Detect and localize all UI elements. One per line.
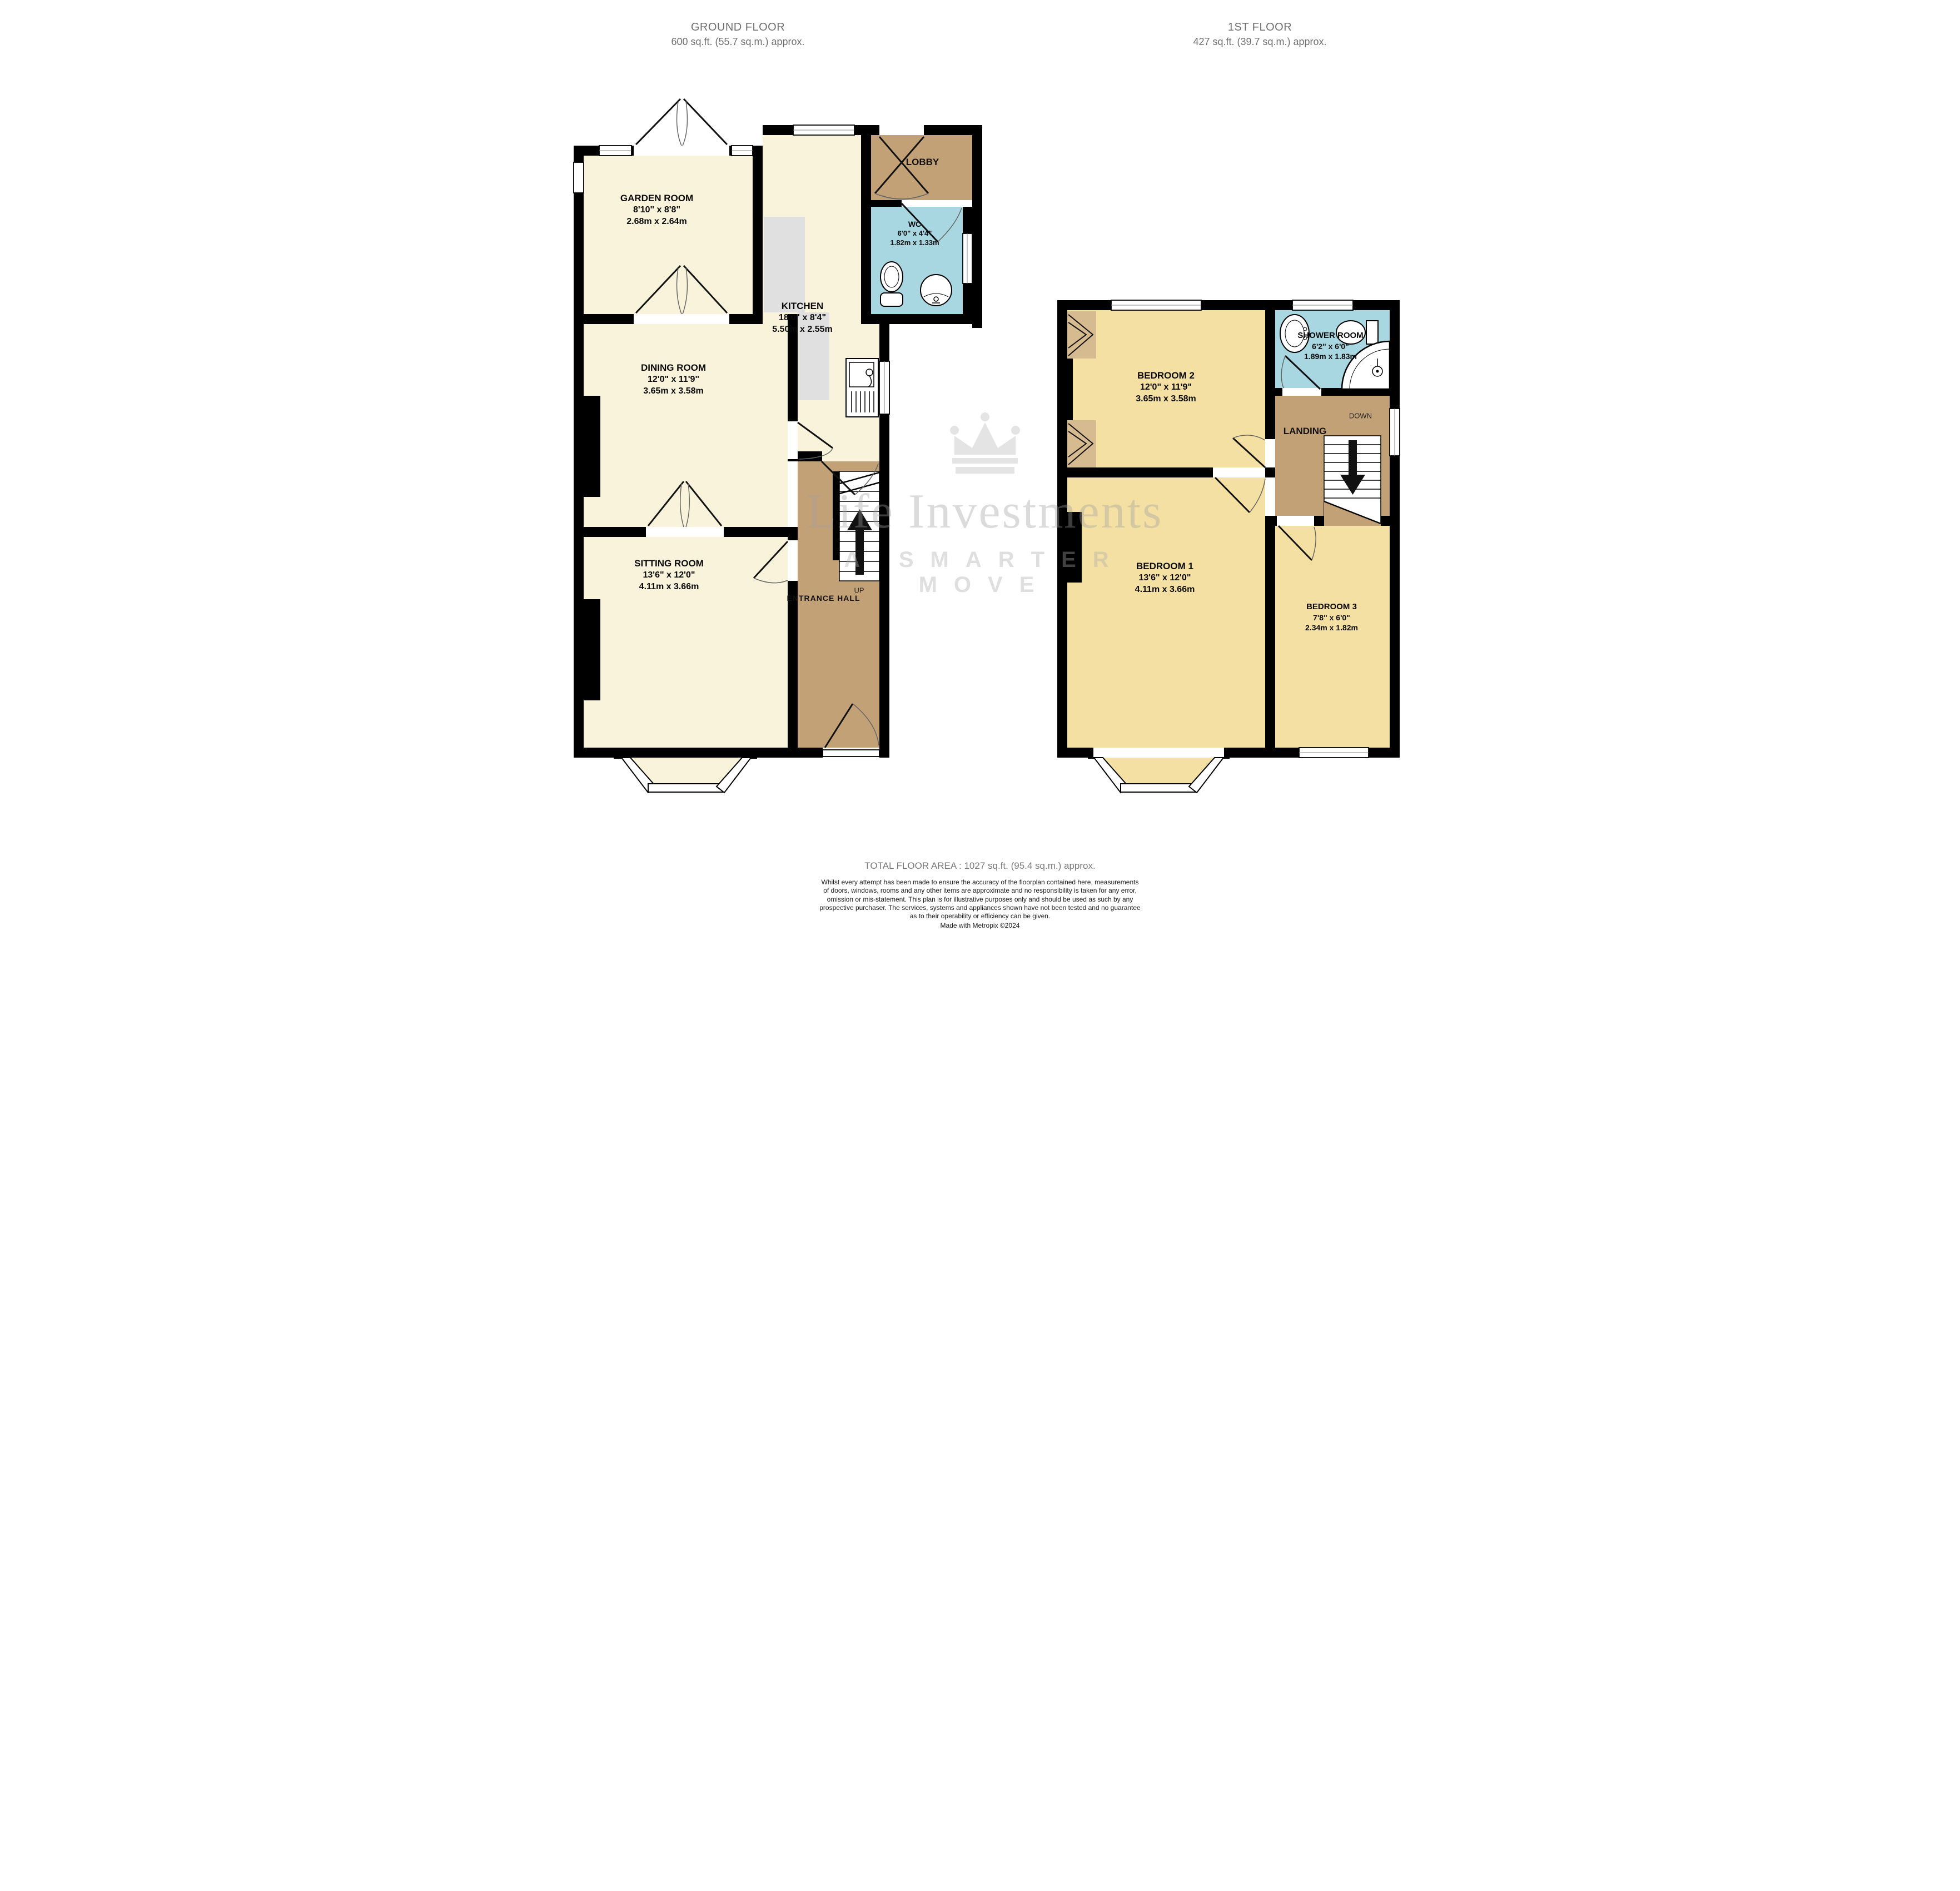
sitting-chimney-breast [584,599,600,700]
first-floor-plan [1057,300,1400,793]
shower-room-name: SHOWER ROOM [1297,330,1363,341]
kitchen-counter [764,217,805,312]
ground-floor-header: GROUND FLOOR 600 sq.ft. (55.7 sq.m.) app… [671,21,804,48]
floorplan-canvas [490,0,1470,945]
entrance-hall-label: ENTRANCE HALL [787,594,860,603]
staircase-down [1324,436,1381,526]
garden-room-label: GARDEN ROOM 8'10" x 8'8" 2.68m x 2.64m [620,192,693,228]
down-label: DOWN [1349,412,1372,420]
dining-room-floor [584,324,788,527]
bedroom3-metric: 2.34m x 1.82m [1305,623,1358,633]
disclaimer-line: as to their operability or efficiency ca… [490,912,1470,920]
sitting-room-imperial: 13'6" x 12'0" [634,570,704,581]
sitting-room-label: SITTING ROOM 13'6" x 12'0" 4.11m x 3.66m [634,558,704,593]
bedroom1-label: BEDROOM 1 13'6" x 12'0" 4.11m x 3.66m [1135,560,1195,596]
bedroom1-metric: 4.11m x 3.66m [1135,584,1195,596]
bedroom2-label: BEDROOM 2 12'0" x 11'9" 3.65m x 3.58m [1136,370,1196,405]
kitchen-metric: 5.50m x 2.55m [772,324,833,336]
kitchen-label: KITCHEN 18'0" x 8'4" 5.50m x 2.55m [772,300,833,336]
ground-floor-area: 600 sq.ft. (55.7 sq.m.) approx. [671,36,804,48]
shower-room-imperial: 6'2" x 6'0" [1297,341,1363,351]
total-floor-area: TOTAL FLOOR AREA : 1027 sq.ft. (95.4 sq.… [490,860,1470,872]
garden-french-door-right [684,99,727,145]
wc-name: WC [890,219,939,229]
disclaimer-line: Whilst every attempt has been made to en… [490,878,1470,887]
garden-room-name: GARDEN ROOM [620,192,693,205]
dining-chimney-breast [584,396,600,497]
bedroom2-metric: 3.65m x 3.58m [1136,394,1196,405]
bedroom3-floor [1275,526,1390,748]
shower-room-metric: 1.89m x 1.83m [1297,351,1363,361]
bedroom1-floor [1065,477,1265,748]
disclaimer-line: prospective purchaser. The services, sys… [490,904,1470,912]
bedroom1-chimney-breast [1065,512,1082,583]
first-floor-header: 1ST FLOOR 427 sq.ft. (39.7 sq.m.) approx… [1193,21,1326,48]
first-floor-area: 427 sq.ft. (39.7 sq.m.) approx. [1193,36,1326,48]
disclaimer-line: of doors, windows, rooms and any other i… [490,887,1470,895]
dining-room-label: DINING ROOM 12'0" x 11'9" 3.65m x 3.58m [641,362,706,397]
garden-side-window [574,162,584,193]
bedroom3-name: BEDROOM 3 [1305,601,1358,613]
floorplan-page: GROUND FLOOR 600 sq.ft. (55.7 sq.m.) app… [490,0,1470,945]
dining-room-name: DINING ROOM [641,362,706,374]
dining-room-metric: 3.65m x 3.58m [641,386,706,397]
garden-room-metric: 2.68m x 2.64m [620,216,693,228]
shower-room-label: SHOWER ROOM 6'2" x 6'0" 1.89m x 1.83m [1297,330,1363,361]
dining-room-imperial: 12'0" x 11'9" [641,374,706,386]
disclaimer-line: omission or mis-statement. This plan is … [490,895,1470,904]
ground-floor-title: GROUND FLOOR [671,21,804,34]
wc-metric: 1.82m x 1.33m [890,238,939,248]
footer: TOTAL FLOOR AREA : 1027 sq.ft. (95.4 sq.… [490,860,1470,929]
kitchen-name: KITCHEN [772,300,833,312]
garden-french-door-left [636,99,680,145]
wc-label: WC 6'0" x 4'4" 1.82m x 1.33m [890,219,939,248]
sitting-room-name: SITTING ROOM [634,558,704,570]
staircase-up [839,471,879,581]
front-door-sill [823,750,879,757]
first-floor-title: 1ST FLOOR [1193,21,1326,34]
lobby-label: LOBBY [906,157,939,168]
bedroom2-name: BEDROOM 2 [1136,370,1196,382]
sitting-room-metric: 4.11m x 3.66m [634,581,704,593]
bedroom3-imperial: 7'8" x 6'0" [1305,613,1358,623]
metropix-credit: Made with Metropix ©2024 [490,922,1470,929]
bedroom1-imperial: 13'6" x 12'0" [1135,573,1195,584]
garden-room-imperial: 8'10" x 8'8" [620,205,693,216]
kitchen-imperial: 18'0" x 8'4" [772,312,833,324]
bedroom2-imperial: 12'0" x 11'9" [1136,382,1196,394]
kitchen-sink-icon [846,359,878,417]
bedroom1-name: BEDROOM 1 [1135,560,1195,573]
garden-room-floor [584,156,753,314]
landing-label: LANDING [1284,426,1326,437]
bedroom3-label: BEDROOM 3 7'8" x 6'0" 2.34m x 1.82m [1305,601,1358,633]
wc-imperial: 6'0" x 4'4" [890,229,939,238]
